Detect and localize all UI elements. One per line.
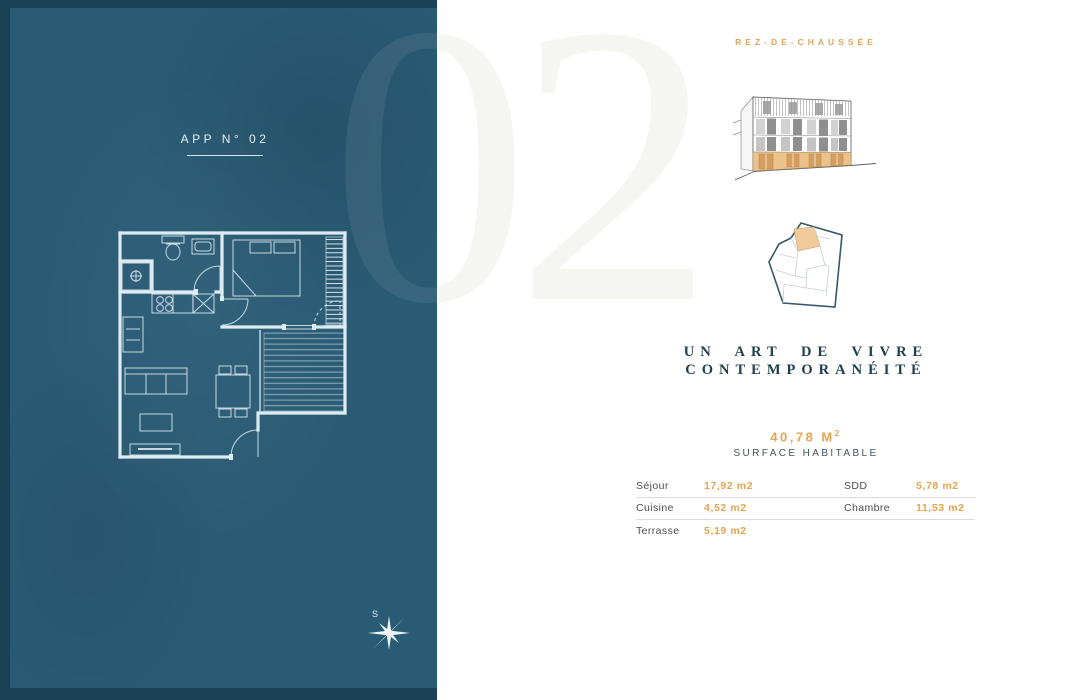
room-value: 11,53 m2 xyxy=(916,502,975,514)
room-label: Séjour xyxy=(636,480,704,492)
surface-caption: SURFACE HABITABLE xyxy=(637,448,975,459)
tagline-line2: CONTEMPORANÉITÉ xyxy=(617,361,995,379)
floor-plan-drawing xyxy=(118,230,348,468)
tagline-line1: UN ART DE VIVRE xyxy=(617,343,995,361)
room-value: 5,78 m2 xyxy=(916,480,975,492)
room-label: Cuisine xyxy=(636,502,704,514)
compass-icon: S xyxy=(362,603,416,663)
room-value: 5,19 m2 xyxy=(704,525,844,537)
room-value: 4,52 m2 xyxy=(704,502,844,514)
apartment-label: APP N° 02 xyxy=(120,132,330,146)
surface-block: 40,78 M2 SURFACE HABITABLE xyxy=(637,429,975,459)
room-label: Terrasse xyxy=(636,525,704,537)
building-elevation-drawing xyxy=(733,83,878,193)
apartment-label-underline xyxy=(187,155,263,156)
apartment-title: APP N° 02 xyxy=(120,132,330,156)
surface-number: 40,78 M xyxy=(770,429,834,444)
compass-south-label: S xyxy=(372,609,378,619)
room-value: 17,92 m2 xyxy=(704,480,844,492)
floor-level-label: REZ-DE-CHAUSSÉE xyxy=(637,37,975,47)
surface-superscript: 2 xyxy=(835,429,842,438)
table-row: Séjour 17,92 m2 SDD 5,78 m2 xyxy=(636,475,975,498)
table-row: Terrasse 5,19 m2 xyxy=(636,520,975,543)
table-row: Cuisine 4,52 m2 Chambre 11,53 m2 xyxy=(636,498,975,521)
brochure-page: 02 02 APP N° 02 xyxy=(0,0,1073,700)
right-page: REZ-DE-CHAUSSÉE xyxy=(437,0,1073,700)
tagline: UN ART DE VIVRE CONTEMPORANÉITÉ xyxy=(617,343,995,379)
surface-area-value: 40,78 M2 xyxy=(637,429,975,444)
rooms-table: Séjour 17,92 m2 SDD 5,78 m2 Cuisine 4,52… xyxy=(636,475,975,543)
room-label: SDD xyxy=(844,480,916,492)
room-label: Chambre xyxy=(844,502,916,514)
site-plan-drawing xyxy=(762,218,858,316)
